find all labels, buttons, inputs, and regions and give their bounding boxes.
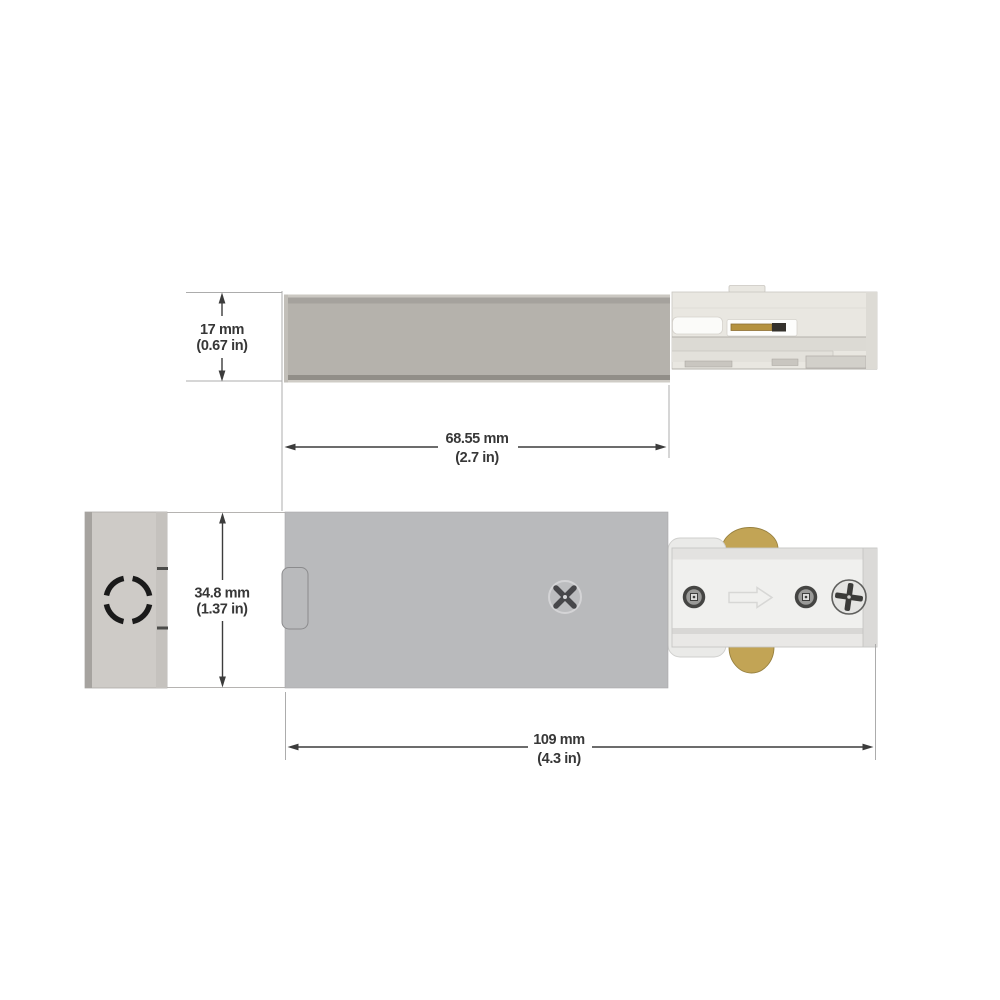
arrowhead	[656, 444, 667, 451]
side-latch-notch	[282, 568, 308, 630]
housing-top	[285, 512, 668, 688]
contact-tip	[772, 323, 786, 332]
dimension-height-mm: 17 mm	[200, 322, 244, 338]
connector-latch	[673, 317, 723, 334]
track-end-cap	[866, 292, 877, 369]
track-bottom-rib	[685, 361, 732, 367]
dimension-width-in: (1.37 in)	[196, 602, 248, 618]
arrowhead	[219, 293, 226, 304]
track-top-tab	[729, 286, 765, 293]
arrowhead	[219, 371, 226, 382]
side-view-body	[284, 295, 670, 383]
housing-side	[284, 295, 670, 383]
track-bottom-rib	[772, 359, 798, 366]
hex-screw-icon	[797, 588, 816, 607]
edge-notch-mark	[157, 627, 168, 630]
center-screw-icon	[549, 581, 581, 613]
arrowhead	[219, 513, 226, 524]
junction-box	[85, 512, 168, 688]
dimension-width-mm: 34.8 mm	[194, 586, 249, 602]
edge-notch-mark	[157, 567, 168, 570]
hex-screw-icon	[685, 588, 704, 607]
track-side-profile	[672, 286, 877, 370]
track-foot	[806, 356, 866, 368]
arrowhead	[285, 444, 296, 451]
dimension-height-in: (0.67 in)	[196, 338, 248, 354]
dimension-overall-mm: 109 mm	[533, 732, 585, 748]
drawing-canvas: 17 mm (0.67 in) 68.55 mm (2.7 in) 34.8 m…	[0, 0, 1000, 1000]
dimension-body-length-in: (2.7 in)	[455, 450, 499, 466]
top-view-body	[282, 512, 668, 688]
side-view	[284, 286, 877, 383]
junction-box-body	[85, 512, 167, 688]
track-mid-band	[672, 337, 877, 351]
arrowhead	[219, 677, 226, 688]
arrowhead	[863, 744, 874, 751]
brass-tab-top	[722, 528, 778, 550]
dimension-overall-in: (4.3 in)	[537, 751, 581, 767]
brass-tab-bottom	[729, 647, 774, 673]
arrowhead	[288, 744, 299, 751]
phillips-screw-icon	[832, 580, 866, 614]
dimension-body-length-mm: 68.55 mm	[446, 431, 509, 447]
track-connector	[668, 528, 877, 674]
dimension-width: 34.8 mm (1.37 in)	[194, 513, 249, 688]
technical-drawing: 17 mm (0.67 in) 68.55 mm (2.7 in) 34.8 m…	[0, 0, 1000, 1000]
dimension-height: 17 mm (0.67 in)	[186, 293, 282, 382]
brass-contact-strip	[731, 324, 772, 331]
